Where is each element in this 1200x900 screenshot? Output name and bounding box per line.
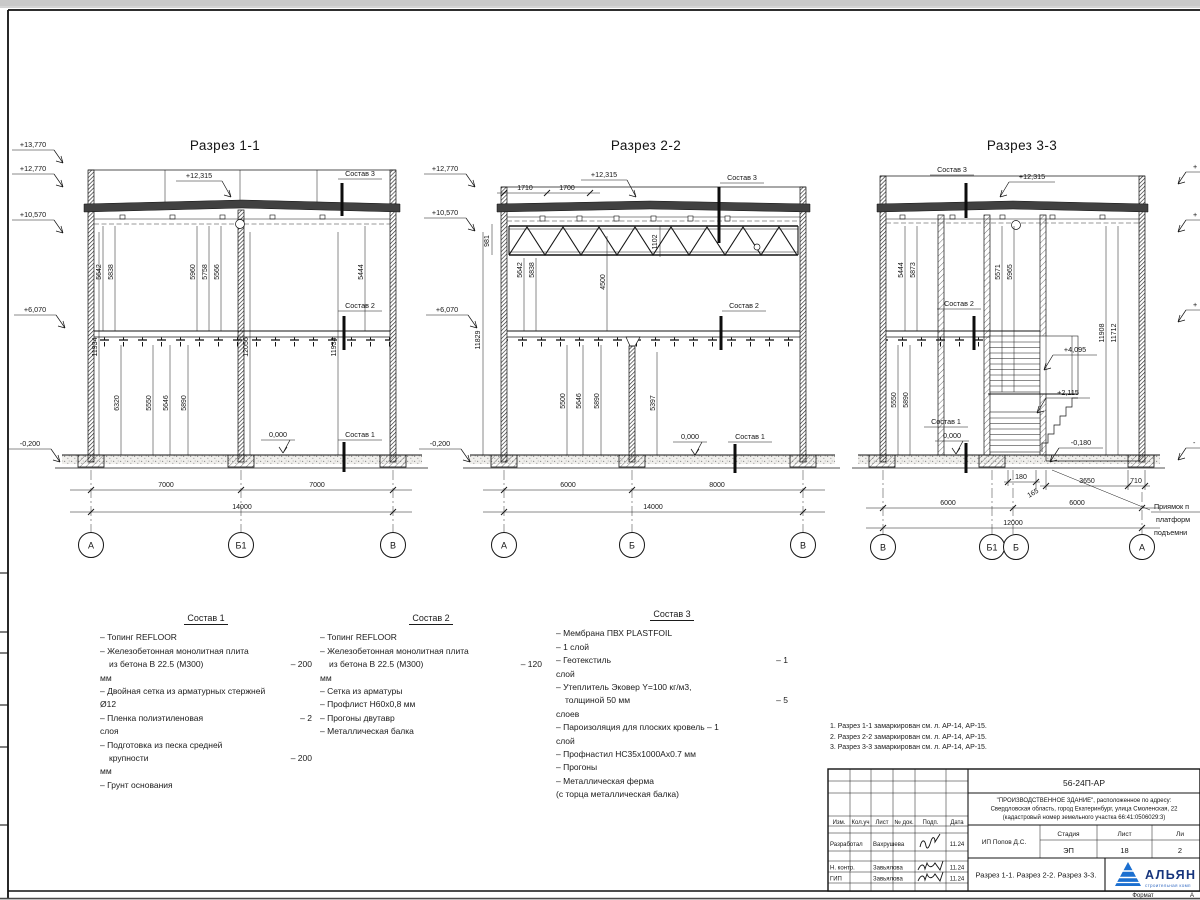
dim-label: 5397 — [650, 395, 657, 411]
axis-bubble: Б1 — [987, 543, 998, 553]
elevation-mark: + — [1193, 300, 1197, 309]
sheet-value: 18 — [1120, 846, 1128, 855]
axis-bubble: А — [88, 541, 94, 551]
elevation-mark: +2,115 — [1057, 388, 1079, 397]
composition-title: Состав 2 — [320, 612, 542, 625]
section-1-1-title: Разрез 1-1 — [190, 138, 260, 153]
composition-title: Состав 1 — [100, 612, 312, 625]
dim-label: 11934 — [92, 337, 99, 356]
composition-line: – Двойная сетка из арматурных стержней — [100, 685, 312, 698]
dim-label: 14000 — [232, 504, 252, 511]
document-number: 56-24П-АР — [1063, 778, 1105, 788]
dim-label: 6000 — [940, 500, 956, 507]
dim-label: 7000 — [309, 482, 325, 489]
layer-callout: Состав 2 — [345, 301, 375, 310]
dim-label: 6320 — [114, 395, 121, 411]
layer-callout: Состав 2 — [944, 299, 974, 308]
logo-name: АЛЬЯН — [1145, 868, 1196, 882]
elevation-mark: +12,315 — [186, 171, 212, 180]
dim-label: 1700 — [559, 185, 575, 192]
dim-label: 5500 — [560, 393, 567, 409]
note-line: 3. Разрез 3-3 замаркирован см. л. АР-14,… — [830, 743, 1110, 754]
pit-note-line: Приямок п — [1154, 502, 1189, 511]
composition-line: – Прогоны — [556, 761, 788, 774]
layer-callout: Состав 3 — [937, 165, 967, 174]
person-name: Завьялова — [873, 866, 904, 872]
elevation-mark: +10,570 — [20, 210, 46, 219]
project-line: Свердловская область, город Екатеринбург… — [991, 807, 1179, 813]
column-header: Кол.уч — [852, 820, 870, 826]
section-3-3-axes: В Б1 Б А — [871, 535, 1155, 560]
composition-line: слоя — [100, 725, 312, 738]
section-2-2: Разрез 2-2 — [419, 138, 840, 558]
composition-block-3: Состав 3 – Мембрана ПВХ PLASTFOIL – 1 сл… — [556, 608, 788, 802]
dim-label: 5873 — [910, 262, 917, 278]
section-1-1-elevations: +13,770 +12,770 +10,570 +6,070 -0,200 — [9, 140, 65, 462]
elevation-mark: +12,770 — [432, 164, 458, 173]
composition-line: из бетона В 22.5 (М300)– 120 — [320, 658, 542, 671]
elevation-mark: +4,095 — [1064, 345, 1086, 354]
composition-line: слоев — [556, 708, 788, 721]
sheets-value: 2 — [1178, 846, 1182, 855]
column-header: Подп. — [923, 820, 939, 826]
elevation-mark: +12,315 — [1019, 172, 1045, 181]
composition-line: (с торца металлическая балка) — [556, 788, 788, 801]
elevation-mark: +6,070 — [24, 305, 46, 314]
composition-line: – Геотекстиль– 1 — [556, 654, 788, 667]
section-3-3-title: Разрез 3-3 — [987, 138, 1057, 153]
dim-label: 981 — [484, 235, 491, 247]
elevation-mark: 0,000 — [269, 430, 287, 439]
dim-label: 5965 — [1007, 264, 1014, 280]
dim-label: 11934 — [331, 337, 338, 356]
axis-bubble: Б — [1013, 543, 1019, 553]
composition-line: – Железобетонная монолитная плита — [320, 645, 542, 658]
composition-line: – Мембрана ПВХ PLASTFOIL — [556, 627, 788, 640]
composition-line: слой — [556, 668, 788, 681]
project-description: "ПРОИЗВОДСТВЕННОЕ ЗДАНИЕ", расположенное… — [991, 798, 1179, 821]
dim-label: 14000 — [643, 504, 663, 511]
dim-label: 6000 — [560, 482, 576, 489]
dim-label: 5890 — [594, 393, 601, 409]
section-1-1-structure — [55, 170, 428, 468]
project-line: (кадастровый номер земельного участка 66… — [1003, 814, 1166, 821]
sheet-title: Разрез 1-1. Разрез 2-2. Разрез 3-3. — [976, 871, 1097, 880]
dim-label: 5642 — [517, 262, 524, 278]
elevation-mark: + — [1193, 162, 1197, 171]
elevation-mark: -0,200 — [20, 439, 40, 448]
dim-label: 5444 — [898, 262, 905, 278]
frame-fold-ticks — [0, 573, 8, 825]
sign-date: 11.24 — [950, 842, 965, 848]
composition-line: – Топинг REFLOOR — [100, 631, 312, 644]
composition-line: – Прогоны двутавр — [320, 712, 542, 725]
elevation-mark: + — [1193, 210, 1197, 219]
dim-label: 710 — [1130, 478, 1142, 485]
column-header: № док. — [894, 819, 914, 826]
dim-label: 6000 — [1069, 500, 1085, 507]
elevation-mark: +12,315 — [591, 170, 617, 179]
column-header: Лист — [875, 820, 888, 826]
dim-label: 12056 — [243, 337, 250, 357]
composition-line: – Утеплитель Эковер Y=100 кг/м3, — [556, 681, 788, 694]
composition-line: – Металлическая ферма — [556, 775, 788, 788]
dim-label: 5642 — [96, 264, 103, 280]
composition-title: Состав 3 — [556, 608, 788, 621]
project-line: "ПРОИЗВОДСТВЕННОЕ ЗДАНИЕ", расположенное… — [997, 798, 1172, 804]
person-name: Вахрушева — [873, 842, 905, 848]
section-2-2-structure — [463, 187, 840, 468]
dim-label: 11712 — [1111, 323, 1118, 342]
sheet-notes: 1. Разрез 1-1 замаркирован см. л. АР-14,… — [830, 722, 1110, 754]
composition-line: – Металлическая балка — [320, 725, 542, 738]
dim-label: 11908 — [1099, 323, 1106, 342]
elevation-mark: -0,200 — [430, 439, 450, 448]
dim-label: 5890 — [181, 395, 188, 411]
axis-bubble: А — [1139, 543, 1145, 553]
logo-tagline: строительная комп — [1145, 883, 1191, 888]
pit-note-line: подъемни — [1154, 528, 1187, 537]
composition-line: из бетона В 22.5 (М300)– 200 — [100, 658, 312, 671]
elevation-mark: 0,000 — [681, 432, 699, 441]
column-header: Дата — [950, 820, 964, 826]
section-3-3-right-elevations: + + + - — [1178, 162, 1200, 460]
stage-value: ЭП — [1063, 846, 1074, 855]
dim-label: 3650 — [1079, 478, 1095, 485]
person-name: Завьялова — [873, 877, 904, 883]
composition-line: мм — [100, 765, 312, 778]
layer-callout: Состав 1 — [931, 417, 961, 426]
layer-callout: Состав 1 — [735, 432, 765, 441]
elevation-mark: - — [1193, 438, 1196, 447]
composition-line: мм — [320, 672, 542, 685]
composition-line: – Профлист Н60х0,8 мм — [320, 698, 542, 711]
axis-bubble: А — [501, 541, 507, 551]
role-label: Разработал — [830, 842, 863, 848]
axis-bubble: В — [800, 541, 806, 551]
axis-bubble: В — [390, 541, 396, 551]
dim-label: 5960 — [190, 264, 197, 280]
sheets-label: Ли — [1176, 831, 1184, 838]
section-2-2-axes: А Б В — [492, 533, 816, 558]
dim-label: 1102 — [652, 234, 659, 249]
format-label: Формат — [1132, 893, 1154, 899]
dim-label: 5838 — [108, 264, 115, 280]
composition-line: мм — [100, 672, 312, 685]
composition-line: – Пароизоляция для плоских кровель – 1 — [556, 721, 788, 734]
elevation-mark: +6,070 — [436, 305, 458, 314]
composition-block-1: Состав 1 – Топинг REFLOOR – Железобетонн… — [100, 612, 312, 792]
composition-line: – Сетка из арматуры — [320, 685, 542, 698]
dim-label: 8000 — [709, 482, 725, 489]
composition-line: толщиной 50 мм– 5 — [556, 694, 788, 707]
composition-line: – Пленка полиэтиленовая– 2 — [100, 712, 312, 725]
title-block: Изм. Кол.уч Лист № док. Подп. Дата Разра… — [828, 769, 1200, 899]
note-line: 1. Разрез 1-1 замаркирован см. л. АР-14,… — [830, 722, 1110, 733]
section-1-1-axes: А Б1 В — [79, 533, 406, 558]
format-value: А — [1190, 893, 1194, 899]
dim-label: 12000 — [1003, 520, 1023, 527]
column-header: Изм. — [833, 820, 846, 826]
elevation-mark: +12,770 — [20, 164, 46, 173]
stage-label: Стадия — [1057, 831, 1080, 838]
composition-line: крупности– 200 — [100, 752, 312, 765]
dim-label: 5571 — [995, 264, 1002, 280]
elevation-mark: +10,570 — [432, 208, 458, 217]
section-1-1: Разрез 1-1 — [9, 138, 428, 558]
section-3-3: Разрез 3-3 — [852, 138, 1200, 560]
dim-label: 1710 — [517, 185, 533, 192]
dim-label: 5550 — [891, 392, 898, 408]
sign-date: 11.24 — [950, 866, 965, 872]
composition-line: – Железобетонная монолитная плита — [100, 645, 312, 658]
dim-label: 5890 — [903, 392, 910, 408]
dim-label: 5758 — [202, 264, 209, 280]
role-label: ГИП — [830, 877, 842, 883]
section-2-2-title: Разрез 2-2 — [611, 138, 681, 153]
dim-label: 11829 — [475, 330, 482, 349]
axis-bubble: В — [880, 543, 886, 553]
composition-line: – 1 слой — [556, 641, 788, 654]
pit-note-line: платформ — [1156, 515, 1190, 524]
axis-bubble: Б1 — [236, 541, 247, 551]
dim-label: 5566 — [214, 264, 221, 280]
composition-line: Ø12 — [100, 698, 312, 711]
elevation-mark: +13,770 — [20, 140, 46, 149]
elevation-mark: -0,180 — [1071, 438, 1091, 447]
dim-label: 4500 — [600, 274, 607, 290]
note-line: 2. Разрез 2-2 замаркирован см. л. АР-14,… — [830, 733, 1110, 744]
elevation-mark: 0,000 — [943, 431, 961, 440]
dim-label: 5838 — [529, 262, 536, 278]
role-label: Н. контр. — [830, 866, 855, 872]
layer-callout: Состав 3 — [727, 173, 757, 182]
dim-label: 5550 — [146, 395, 153, 411]
axis-bubble: Б — [629, 541, 635, 551]
layer-callout: Состав 3 — [345, 169, 375, 178]
dim-label: 180 — [1015, 474, 1027, 481]
dim-label: 7000 — [158, 482, 174, 489]
sheet-label: Лист — [1117, 831, 1131, 838]
composition-line: – Профнастил НС35х1000Ах0.7 мм — [556, 748, 788, 761]
client-name: ИП Попов Д.С. — [982, 839, 1027, 846]
dim-label: 5646 — [163, 395, 170, 411]
composition-block-2: Состав 2 – Топинг REFLOOR – Железобетонн… — [320, 612, 542, 739]
composition-line: слой — [556, 735, 788, 748]
dim-label: 165 — [1026, 488, 1040, 500]
dim-label: 5646 — [576, 393, 583, 409]
section-2-2-elevations: +12,770 +10,570 +6,070 -0,200 — [419, 164, 477, 462]
sign-date: 11.24 — [950, 877, 965, 883]
layer-callout: Состав 2 — [729, 301, 759, 310]
drawing-sheet: Разрез 1-1 — [0, 0, 1200, 900]
layer-callout: Состав 1 — [345, 430, 375, 439]
composition-line: – Грунт основания — [100, 779, 312, 792]
composition-line: – Подготовка из песка средней — [100, 739, 312, 752]
dim-label: 5444 — [358, 264, 365, 280]
composition-line: – Топинг REFLOOR — [320, 631, 542, 644]
